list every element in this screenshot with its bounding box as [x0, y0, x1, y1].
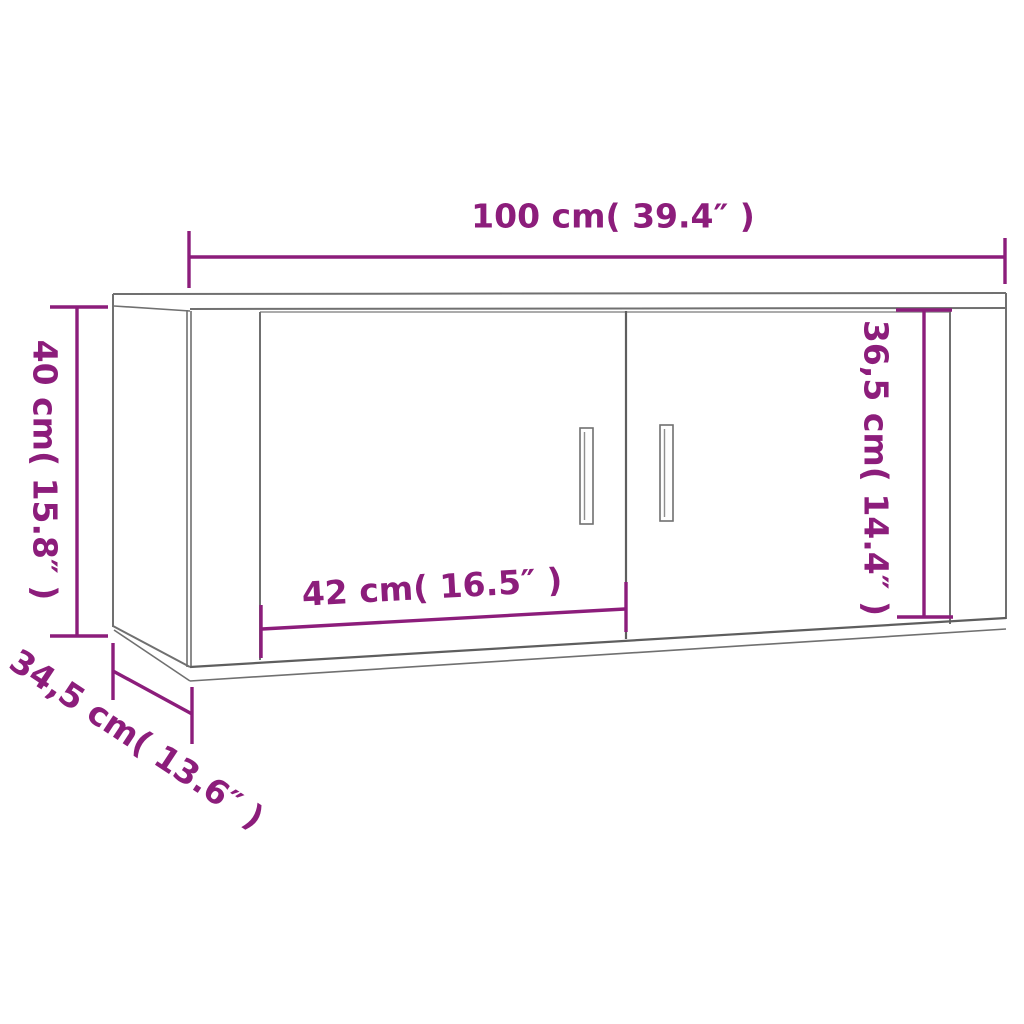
height-dimension-label: 40 cm( 15.8″ )	[26, 340, 65, 601]
width-dimension-line	[189, 231, 1005, 288]
inner-height-dimension-line	[896, 310, 953, 617]
dimension-diagram: 100 cm( 39.4″ ) 40 cm( 15.8″ ) 36,5 cm( …	[0, 0, 1024, 1024]
inner-height-dimension-label: 36,5 cm( 14.4″ )	[857, 320, 896, 616]
width-dimension-label: 100 cm( 39.4″ )	[471, 197, 755, 236]
right-door-handle	[660, 425, 673, 521]
left-door-handle	[580, 428, 593, 524]
